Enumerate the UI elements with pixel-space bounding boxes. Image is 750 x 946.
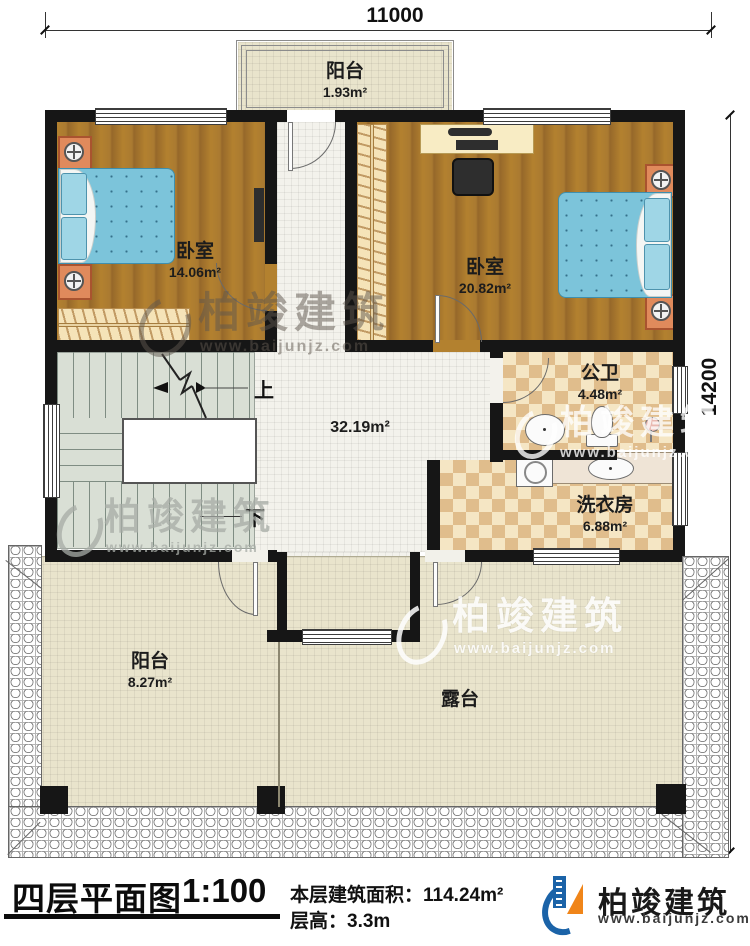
floor-area-label: 本层建筑面积： <box>290 885 423 906</box>
brand-website: www.baijunjz.com <box>598 910 750 926</box>
room-area: 32.19m² <box>300 418 420 438</box>
room-area: 20.82m² <box>420 280 550 298</box>
window <box>672 366 688 414</box>
pillow <box>61 173 87 215</box>
balcony-terrace-divider <box>278 642 280 807</box>
pillow <box>644 198 670 242</box>
room-area: 1.93m² <box>295 84 395 102</box>
title-underline <box>4 914 280 919</box>
window <box>533 548 620 565</box>
room-label-bedroom-right: 卧室 20.82m² <box>420 256 550 297</box>
column <box>656 784 686 814</box>
wall <box>427 460 440 562</box>
door-opening <box>490 358 503 403</box>
plan-scale: 1:100 <box>182 872 266 910</box>
room-name: 洗衣房 <box>545 494 665 518</box>
lamp-icon <box>651 170 671 190</box>
wall <box>277 552 287 642</box>
room-area: 8.27m² <box>90 674 210 692</box>
dim-top-line <box>45 30 712 31</box>
office-chair <box>452 158 494 196</box>
door-leaf <box>253 562 258 616</box>
room-name: 阳台 <box>90 650 210 674</box>
room-label-laundry: 洗衣房 6.88m² <box>545 494 665 535</box>
toilet-brush-stem <box>650 430 652 442</box>
stairs-left-flight <box>57 418 122 482</box>
lamp-icon <box>64 271 84 291</box>
roof-tile-strip-right <box>682 556 729 858</box>
wall <box>265 110 277 352</box>
window <box>483 108 611 125</box>
toilet-brush-icon <box>645 417 660 432</box>
roof-tile-strip-bottom <box>8 806 729 858</box>
wall <box>410 552 420 642</box>
wardrobe <box>58 308 190 342</box>
door-leaf <box>435 295 440 343</box>
room-label-balcony-bottom: 阳台 8.27m² <box>90 650 210 691</box>
lamp-icon <box>64 142 84 162</box>
door-opening <box>287 110 335 122</box>
door-opening <box>425 550 465 562</box>
room-area: 6.88m² <box>545 518 665 536</box>
room-name: 露台 <box>400 688 520 712</box>
floor-plan-canvas: 11000 14200 上 下 <box>0 0 750 946</box>
dim-top-tick-left-ext <box>45 12 46 38</box>
dim-right-line <box>730 115 731 853</box>
logo-building-icon <box>553 876 566 908</box>
nightstand <box>58 136 92 170</box>
toilet-icon <box>591 406 613 438</box>
room-label-hall: 32.19m² <box>300 418 420 438</box>
door-opening <box>232 550 268 562</box>
window <box>672 452 688 526</box>
room-area: 4.48m² <box>540 386 660 404</box>
logo-swoosh-icon <box>533 874 599 943</box>
stairs-down-label: 下 <box>245 502 265 531</box>
nightstand <box>58 264 92 300</box>
room-name: 阳台 <box>295 60 395 84</box>
dim-top-label: 11000 <box>340 4 450 28</box>
wall <box>45 550 232 562</box>
floor-height-line: 层高：3.3m <box>290 906 390 933</box>
stairs-up-label: 上 <box>254 374 274 403</box>
stairs-down-line <box>200 516 242 517</box>
room-name: 公卫 <box>540 362 660 386</box>
hall-lower-floor <box>253 460 427 552</box>
room-label-bedroom-left: 卧室 14.06m² <box>130 240 260 281</box>
brand-logo <box>541 872 593 930</box>
floor-area-line: 本层建筑面积：114.24m² <box>290 880 503 907</box>
door-leaf <box>288 122 293 171</box>
floor-height-value: 3.3m <box>347 911 390 932</box>
stairs-direction-arrow <box>140 348 270 438</box>
tv-icon <box>254 188 264 242</box>
pillow <box>61 217 87 260</box>
room-terrace-floor <box>278 556 692 817</box>
room-label-bathroom: 公卫 4.48m² <box>540 362 660 403</box>
sink-icon <box>588 457 634 480</box>
room-label-terrace: 露台 <box>400 688 520 712</box>
room-name: 卧室 <box>130 240 260 264</box>
lamp-icon <box>651 301 671 321</box>
plan-title: 四层平面图 <box>12 872 182 920</box>
window <box>302 629 392 645</box>
wardrobe <box>357 124 387 342</box>
wall <box>345 110 357 352</box>
floor-height-label: 层高： <box>290 911 347 932</box>
dim-top-tick-right-ext <box>711 12 712 38</box>
wall <box>45 340 277 352</box>
dim-right-label: 14200 <box>698 342 722 432</box>
room-name: 卧室 <box>420 256 550 280</box>
room-label-balcony-top: 阳台 1.93m² <box>295 60 395 101</box>
column <box>257 786 285 814</box>
wall <box>503 450 617 460</box>
hall-main-floor <box>253 352 490 460</box>
window <box>43 404 60 498</box>
sink-icon <box>525 414 565 446</box>
window <box>95 108 227 125</box>
pillow <box>644 244 670 290</box>
stairs-lower-flight <box>57 482 253 547</box>
door-leaf <box>433 562 438 607</box>
wall <box>345 340 685 352</box>
wall <box>268 550 277 562</box>
room-area: 14.06m² <box>130 264 260 282</box>
column <box>40 786 68 814</box>
floor-area-value: 114.24m² <box>423 885 503 906</box>
desk-item <box>448 128 492 136</box>
keyboard-icon <box>456 140 498 150</box>
